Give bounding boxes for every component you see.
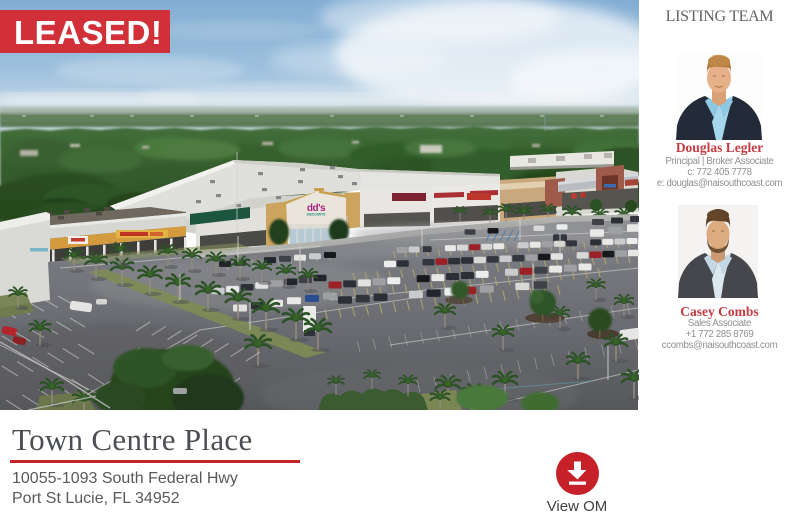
svg-text:DISCOUNTS: DISCOUNTS (307, 213, 326, 217)
